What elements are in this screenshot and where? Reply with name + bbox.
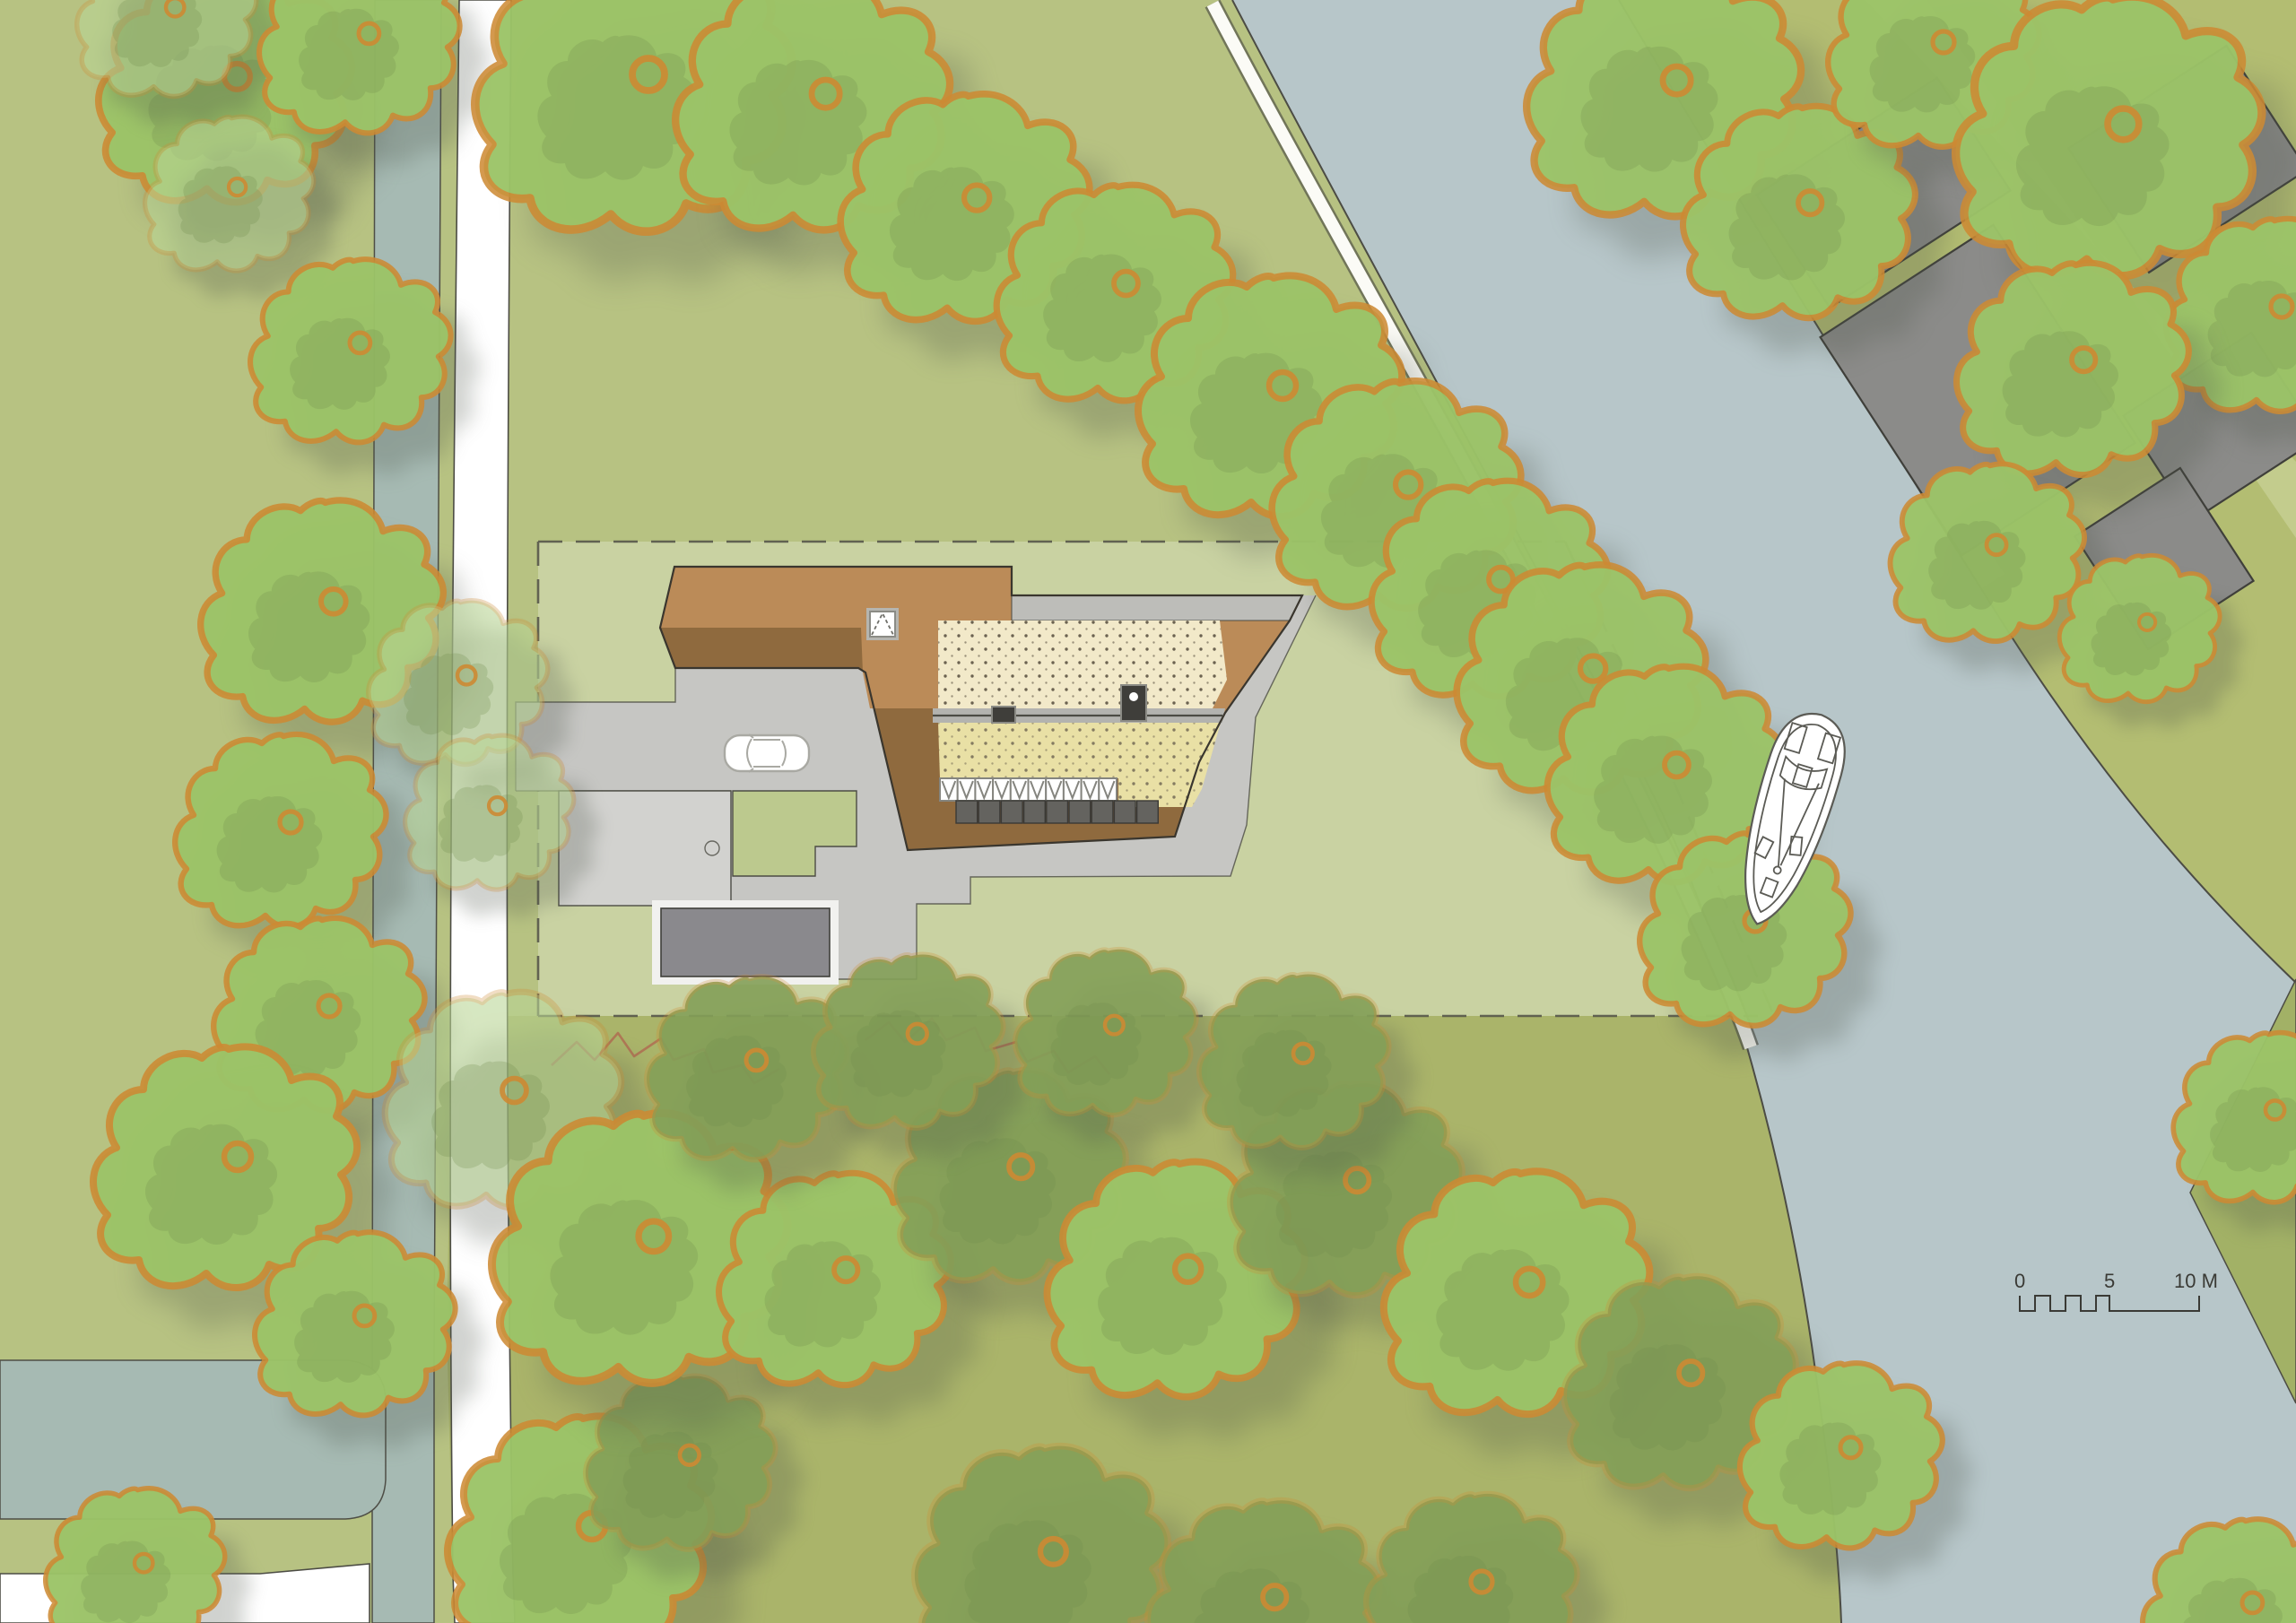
roof-dark-boxes (956, 801, 1158, 823)
roof-dark-box (978, 801, 1000, 823)
scale-label-10m: 10 M (2174, 1270, 2218, 1292)
rooflight-panels (940, 778, 1117, 801)
roof-dark-box (956, 801, 978, 823)
roof-dark-box (1024, 801, 1046, 823)
garden-shed (652, 900, 839, 985)
roof-dark-box (1137, 801, 1159, 823)
site-plan-drawing: 0 5 10 M (0, 0, 2296, 1623)
car (725, 734, 809, 772)
vent-box (992, 707, 1015, 723)
skylight (866, 608, 899, 640)
scale-label-0: 0 (2014, 1270, 2025, 1292)
terrace-upper-dots (938, 621, 1227, 708)
roof-dark-box (1069, 801, 1091, 823)
roof-dark-box (1114, 801, 1135, 823)
roof-deck-band (1012, 595, 1302, 621)
roof-dark-box (1091, 801, 1113, 823)
chimney (1121, 685, 1146, 721)
scale-label-5: 5 (2104, 1270, 2115, 1292)
roof-dark-box (1001, 801, 1022, 823)
roof-dark-box (1047, 801, 1068, 823)
